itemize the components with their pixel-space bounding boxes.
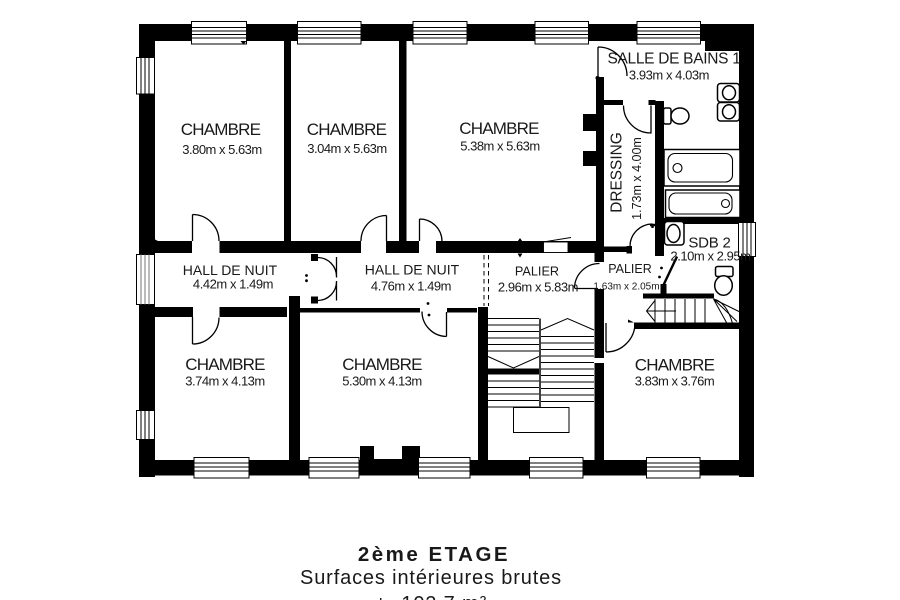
- svg-text:DRESSING: DRESSING: [609, 132, 626, 212]
- svg-text:+- 102.7 m²: +- 102.7 m²: [375, 593, 487, 600]
- svg-text:PALIER: PALIER: [515, 265, 559, 279]
- svg-text:PALIER: PALIER: [608, 262, 652, 276]
- svg-text:Surfaces intérieures brutes: Surfaces intérieures brutes: [300, 567, 562, 589]
- svg-text:CHAMBRE: CHAMBRE: [342, 355, 422, 374]
- svg-text:CHAMBRE: CHAMBRE: [185, 355, 265, 374]
- svg-text:3.83m x 3.76m: 3.83m x 3.76m: [635, 374, 715, 389]
- svg-text:3.93m x 4.03m: 3.93m x 4.03m: [629, 68, 709, 83]
- svg-text:SALLE DE BAINS 1: SALLE DE BAINS 1: [607, 51, 740, 68]
- svg-text:3.74m x 4.13m: 3.74m x 4.13m: [185, 374, 265, 389]
- svg-text:5.30m x 4.13m: 5.30m x 4.13m: [342, 374, 422, 389]
- svg-text:4.76m x 1.49m: 4.76m x 1.49m: [371, 279, 451, 294]
- svg-text:CHAMBRE: CHAMBRE: [635, 356, 715, 375]
- svg-text:2.96m x 5.83m: 2.96m x 5.83m: [498, 280, 578, 295]
- svg-text:4.42m x 1.49m: 4.42m x 1.49m: [193, 277, 273, 292]
- svg-text:CHAMBRE: CHAMBRE: [181, 120, 261, 139]
- svg-text:CHAMBRE: CHAMBRE: [307, 120, 387, 139]
- svg-text:3.80m x 5.63m: 3.80m x 5.63m: [182, 142, 262, 157]
- svg-text:CHAMBRE: CHAMBRE: [459, 119, 539, 138]
- svg-text:2.10m x 2.95m: 2.10m x 2.95m: [670, 249, 750, 264]
- svg-text:1.73m x 4.00m: 1.73m x 4.00m: [630, 137, 644, 220]
- svg-text:1.63m x 2.05m: 1.63m x 2.05m: [593, 282, 659, 293]
- svg-text:2ème ETAGE: 2ème ETAGE: [358, 543, 510, 566]
- svg-text:HALL DE NUIT: HALL DE NUIT: [365, 262, 460, 278]
- svg-text:5.38m x 5.63m: 5.38m x 5.63m: [460, 139, 540, 154]
- svg-text:3.04m x 5.63m: 3.04m x 5.63m: [307, 141, 387, 156]
